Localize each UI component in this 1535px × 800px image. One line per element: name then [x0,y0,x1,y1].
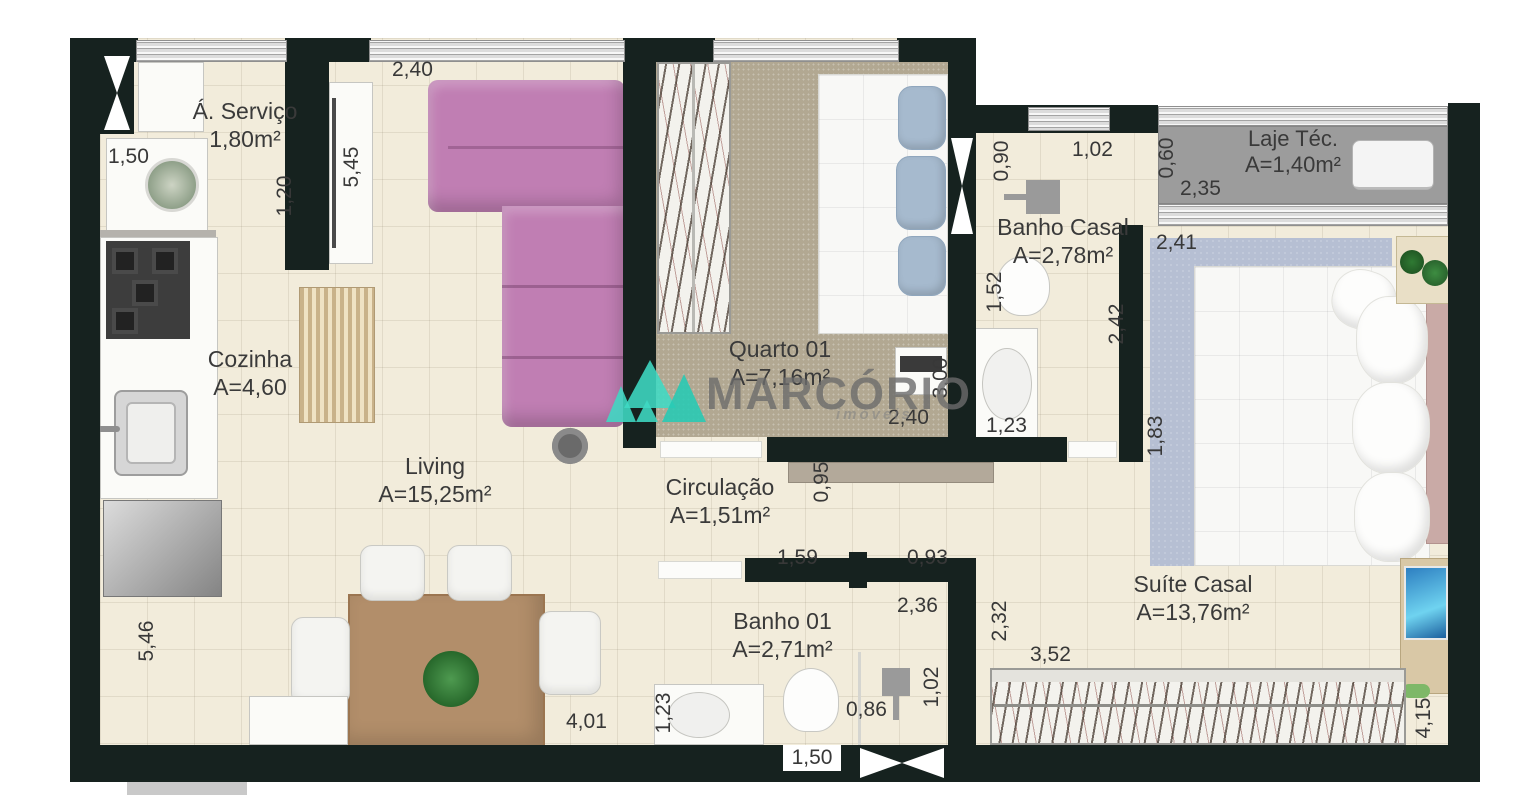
room-area: A=15,25m² [378,481,491,507]
burner [112,308,138,334]
dim-label: 1,02 [920,659,944,715]
dim-label: 3,52 [1030,643,1071,667]
dim-label: 1,20 [273,168,297,224]
wall-banho01-right [948,558,976,745]
dim-label: 1,52 [983,264,1007,320]
casal-shower-arm [1004,194,1026,200]
dim-chip: 1,50 [783,745,841,771]
tv-icon [332,98,336,248]
room-name: Quarto 01 [729,336,831,362]
room-label-living: Living A=15,25m² [370,452,500,508]
kitchen-sink-basin [126,402,176,464]
nightstand-plant [1422,260,1448,286]
shaft-x-icon [951,138,973,234]
room-name: Circulação [666,474,775,500]
washer-drum [145,158,199,212]
dining-chair [360,545,425,601]
dim-label: 2,36 [897,594,938,618]
dim-label: 1,50 [108,145,149,169]
window [136,40,287,62]
suite-pillow [1356,296,1428,384]
dim-label: 0,86 [846,698,887,722]
dim-label: 2,40 [392,58,433,82]
floor-plan: Á. Serviço 1,80m² Cozinha A=4,60 Living … [0,0,1535,800]
room-label-cozinha: Cozinha A=4,60 [195,345,305,401]
dim-label: 2,32 [988,593,1012,649]
banho01-toilet [783,668,839,732]
suite-pillow [1352,382,1430,474]
wall-right [1448,103,1480,782]
side-table [552,428,588,464]
dim-label: 1,83 [1144,408,1168,464]
dim-label: 5,45 [340,139,364,195]
room-label-suite: Suíte Casal A=13,76m² [1118,570,1268,626]
quarto-wardrobe-divider [692,64,695,332]
room-area: A=1,40m² [1245,152,1341,177]
burner [132,280,158,306]
table-plant [423,651,479,707]
room-area: A=1,51m² [670,502,770,528]
window [1028,107,1110,131]
dim-label: 0,93 [907,546,948,570]
dim-label: 1,23 [652,685,676,741]
quarto-pillow [898,236,946,296]
sofa-seam [448,146,625,149]
wall [70,38,100,782]
exterior-patch [958,38,1158,105]
banho01-vanity-basin [668,692,730,738]
window [1158,106,1448,126]
room-name: Laje Téc. [1248,126,1338,151]
quarto-pillow [896,156,946,230]
room-name: Suíte Casal [1134,571,1253,597]
window [1158,204,1448,226]
room-name: Á. Serviço [193,98,298,124]
wall-servico-divider [285,38,329,270]
room-label-banho-casal: Banho Casal A=2,78m² [988,213,1138,269]
sofa-seam [502,356,625,359]
casal-shower-head-icon [1026,180,1060,214]
dim-label: 2,35 [1180,177,1221,201]
room-name: Banho 01 [733,608,831,634]
dim-label: 1,23 [986,414,1027,438]
dim-label: 1,02 [1072,138,1113,162]
burner [152,248,178,274]
dim-label: 1,59 [777,546,818,570]
window [713,40,899,62]
room-label-banho01: Banho 01 A=2,71m² [715,607,850,663]
slat-divider [299,287,375,423]
logo-triangle [624,360,676,408]
dim-label: 2,41 [1156,231,1197,255]
dining-chair [447,545,512,601]
nightstand-plant [1400,250,1424,274]
dim-label: 4,01 [566,710,607,734]
shaft-x-icon [104,56,130,130]
room-label-circulacao: Circulação A=1,51m² [645,473,795,529]
dim-label: 0,60 [1155,130,1179,186]
casal-door [1068,441,1117,458]
room-name: Banho Casal [997,214,1129,240]
suite-picture [1404,566,1448,640]
sofa-seam [502,285,625,288]
room-name: Cozinha [208,346,292,372]
quarto-door [660,441,762,458]
room-area: A=2,71m² [732,636,832,662]
room-label-servico: Á. Serviço 1,80m² [175,97,315,153]
dim-label: 0,95 [810,454,834,510]
dim-label: 5,46 [135,613,159,669]
dim-label: 4,15 [1412,690,1436,746]
exterior-patch [1158,38,1448,106]
banho01-shower-head-icon [882,668,910,696]
room-area: A=4,60 [213,374,287,400]
casal-vanity-basin [982,348,1032,420]
room-label-laje: Laje Téc. A=1,40m² [1228,126,1358,178]
banho01-door [658,561,742,579]
dim-label: 2,42 [1105,296,1129,352]
watermark-sub: imóveis [836,406,913,423]
quarto-pillow [898,86,946,150]
wall-banho01-nub [849,552,867,588]
room-area: 1,80m² [209,126,281,152]
suite-pillow [1354,472,1430,562]
room-name: Living [405,453,465,479]
suite-closet-shelf [992,670,1404,682]
entry-mat [127,782,247,795]
ac-condenser [1352,140,1434,190]
shaft-x-icon [860,748,944,778]
room-area: A=2,78m² [1013,242,1113,268]
burner [112,248,138,274]
dim-label: 0,90 [990,133,1014,189]
dining-chair [291,617,350,705]
fridge [103,500,222,597]
buffet-sideboard [249,696,348,745]
dining-chair [539,611,601,695]
suite-closet-rail [994,704,1402,707]
banho01-shower-arm [893,696,899,720]
counter-shelf [100,230,216,237]
watermark-logo-icon [606,360,708,424]
room-area: A=13,76m² [1136,599,1249,625]
wall-bottom [70,745,1480,782]
